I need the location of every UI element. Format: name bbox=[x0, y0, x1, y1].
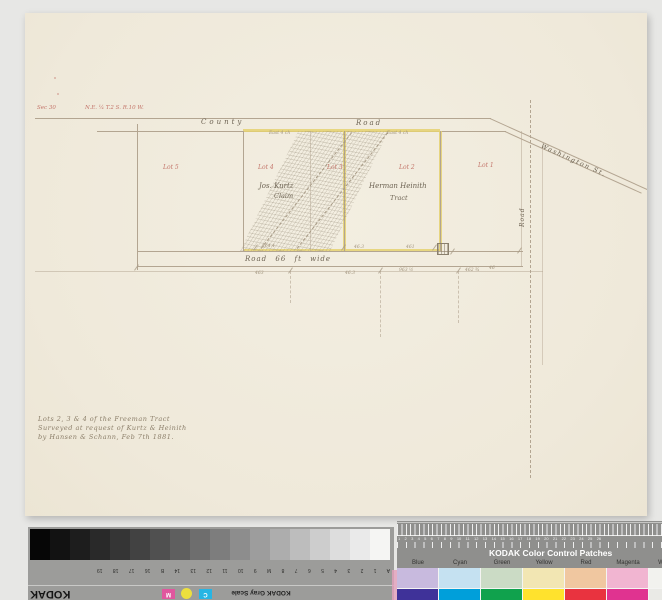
township-note: N.E. ¼ T.2 S. R.10 W. bbox=[85, 105, 144, 111]
measure-m7: 462 ¾ bbox=[465, 268, 479, 273]
measure-m8: 46 bbox=[489, 266, 495, 271]
survey-tie-line-1 bbox=[290, 271, 291, 303]
patch-yellow-light bbox=[523, 568, 564, 588]
patch-cyan-dark bbox=[439, 589, 480, 600]
heinith-tract-name: Herman Heinith bbox=[369, 182, 427, 190]
bottom-road-north-line bbox=[137, 251, 523, 252]
creek-hatched-area bbox=[240, 131, 389, 251]
ruler-ticks-fine bbox=[397, 524, 662, 536]
patch-green-dark bbox=[481, 589, 522, 600]
east-road-label: Road bbox=[519, 207, 526, 227]
caption-line-3: by Hansen & Schann, Feb 7th 1881. bbox=[38, 433, 174, 441]
county-road-label-county: County bbox=[201, 118, 244, 126]
east-road-solid-line bbox=[542, 147, 543, 365]
measure-m3: 461 bbox=[406, 245, 415, 250]
patch-magenta-light bbox=[607, 568, 648, 588]
county-road-north-line bbox=[35, 118, 491, 119]
patch-label-green: Green bbox=[481, 560, 523, 566]
measure-m6: 963 ½ bbox=[399, 268, 413, 273]
gray-scale-divider-line bbox=[28, 585, 394, 586]
kurtz-tract-word: Claim bbox=[274, 192, 293, 200]
lot-label-3: Lot 3 bbox=[327, 164, 343, 171]
magenta-chip: M bbox=[162, 589, 175, 599]
measure-m5: 46.3 bbox=[345, 271, 355, 276]
lot-label-4: Lot 4 bbox=[258, 164, 274, 171]
lot-boundary-west bbox=[137, 124, 138, 270]
caption-line-2: Surveyed at request of Kurtz & Heinith bbox=[38, 424, 187, 432]
ruler-top-hairline bbox=[397, 522, 662, 523]
patch-w-dark bbox=[649, 589, 662, 600]
patch-green-light bbox=[481, 568, 522, 588]
kodak-brand-text: KODAK bbox=[30, 588, 70, 600]
east-measure-2: East 4 ch bbox=[387, 131, 408, 136]
scanned-photo: Sec 30 N.E. ¼ T.2 S. R.10 W. County Road… bbox=[0, 0, 662, 600]
patch-w-light bbox=[649, 568, 662, 588]
county-road-label-road: Road bbox=[356, 119, 382, 127]
lot-boundary-4 bbox=[440, 131, 441, 252]
caption-line-1: Lots 2, 3 & 4 of the Freeman Tract bbox=[38, 415, 170, 423]
gray-scale-tick-numbers: A 1 2 3 4 5 6 7 8 M 9 10 11 12 13 14 B 1… bbox=[30, 561, 390, 573]
lot-label-2: Lot 2 bbox=[399, 164, 415, 171]
survey-tie-line-3 bbox=[458, 271, 459, 323]
east-measure-1: East 4 ch bbox=[269, 131, 290, 136]
patch-red-light bbox=[565, 568, 606, 588]
section-note: Sec 30 bbox=[37, 105, 56, 111]
gray-scale-wedge bbox=[30, 529, 390, 560]
east-road-dashed-line bbox=[530, 100, 531, 478]
survey-tie-line-2 bbox=[380, 271, 381, 337]
survey-map-paper: Sec 30 N.E. ¼ T.2 S. R.10 W. County Road… bbox=[25, 13, 647, 516]
ruler-numbers: 1 2 3 4 5 6 7 8 9 10 11 12 13 14 15 16 1… bbox=[398, 536, 662, 541]
measure-m1: 464.4 bbox=[262, 244, 275, 249]
color-patches-title: KODAK Color Control Patches bbox=[489, 548, 612, 558]
yellow-chip bbox=[181, 588, 192, 599]
red-ink-speck bbox=[57, 93, 59, 95]
gray-scale-title: KODAK Gray Scale bbox=[213, 589, 309, 596]
building-footprint bbox=[437, 243, 449, 255]
patch-label-yellow: Yellow bbox=[523, 560, 565, 566]
heinith-tract-word: Tract bbox=[390, 194, 408, 202]
patch-label-blue: Blue bbox=[397, 560, 439, 566]
cyan-chip: C bbox=[199, 589, 212, 599]
measure-m2: 46.3 bbox=[354, 245, 364, 250]
patch-cyan-light bbox=[439, 568, 480, 588]
patch-magenta-dark bbox=[607, 589, 648, 600]
lot-boundary-1 bbox=[243, 131, 244, 252]
patch-label-w: W bbox=[646, 560, 662, 566]
patch-label-cyan: Cyan bbox=[439, 560, 481, 566]
patch-label-red: Red bbox=[565, 560, 607, 566]
patch-blue-dark bbox=[397, 589, 438, 600]
patch-yellow-dark bbox=[523, 589, 564, 600]
kurtz-tract-name: Jos. Kurtz bbox=[259, 182, 294, 190]
washington-st-label: Washington St. bbox=[540, 142, 608, 178]
bottom-road-label: Road 66 ft wide bbox=[245, 255, 331, 263]
patch-red-dark bbox=[565, 589, 606, 600]
red-ink-speck bbox=[54, 77, 56, 79]
measure-m4: 463 bbox=[255, 271, 264, 276]
bottom-road-south-line bbox=[137, 266, 523, 267]
lot-label-1: Lot 1 bbox=[478, 162, 494, 169]
patch-label-magenta: Magenta bbox=[607, 560, 649, 566]
lot-label-5: Lot 5 bbox=[163, 164, 179, 171]
patch-blue-light bbox=[397, 568, 438, 588]
